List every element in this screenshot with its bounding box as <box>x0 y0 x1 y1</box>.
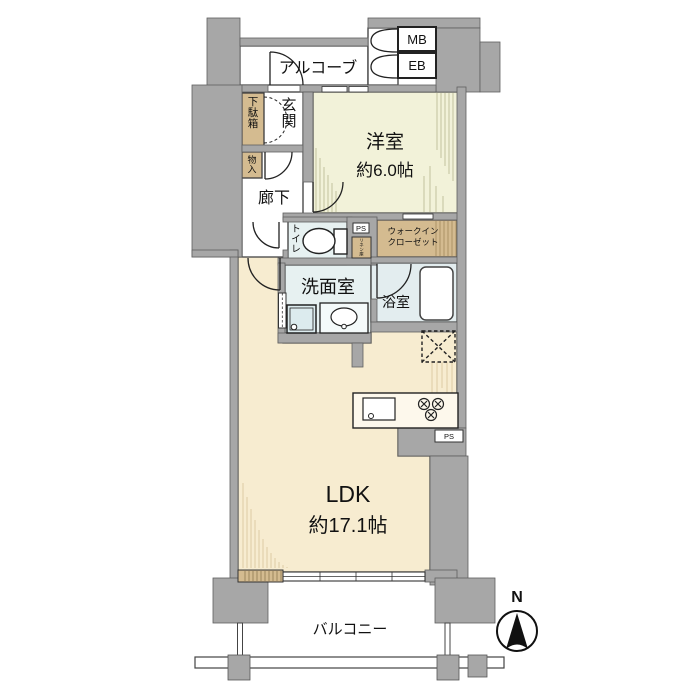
bathroom-label: 浴室 <box>382 294 410 310</box>
wic-label-line2: クローゼット <box>387 237 438 247</box>
ldk-size-label: 約17.1帖 <box>309 514 388 537</box>
washroom-label: 洗面室 <box>301 277 355 297</box>
wic-label-line1: ウォークイン <box>387 226 438 236</box>
bathtub <box>420 267 453 320</box>
balcony-label: バルコニー <box>313 621 388 638</box>
storage-label: 物入 <box>247 154 256 174</box>
entrance-label: 玄関 <box>281 97 296 130</box>
hallway-label: 廊下 <box>258 189 290 207</box>
western-room-door-pocket <box>305 182 313 213</box>
vanity-sink <box>320 303 368 333</box>
mb-label: MB <box>407 32 427 47</box>
alcove-label: アルコーブ <box>279 58 358 77</box>
compass-north-label: N <box>511 589 523 606</box>
western-room-window-1 <box>322 87 347 93</box>
eb-label: EB <box>408 58 425 73</box>
kitchen-sink <box>363 398 395 420</box>
floor-plan-page: N アルコーブ MB EB 下駄箱 玄関 物入 廊下 洋室 約6.0帖 トイレ … <box>0 0 700 700</box>
balcony-divider-left <box>238 623 243 657</box>
kitchen-counter <box>353 393 458 428</box>
toilet-label: トイレ <box>291 224 301 255</box>
floor-plan: N アルコーブ MB EB 下駄箱 玄関 物入 廊下 洋室 約6.0帖 トイレ … <box>0 0 700 700</box>
western-room-label: 洋室 <box>366 131 404 153</box>
washroom-folding-door <box>279 293 287 328</box>
compass: N <box>497 589 537 651</box>
ldk-label: LDK <box>326 481 371 507</box>
pipe-space-top-label: PS <box>356 224 366 233</box>
washing-machine-pan <box>287 305 316 333</box>
linen-label: リネン庫 <box>359 238 364 258</box>
western-room-size: 約6.0帖 <box>356 161 414 180</box>
shoe-cabinet-label: 下駄箱 <box>248 96 259 130</box>
wic-window <box>403 214 433 219</box>
pipe-space-kitchen-label: PS <box>444 432 454 441</box>
balcony-divider-right <box>445 623 450 657</box>
toilet-fixture <box>303 229 347 255</box>
western-room-window-2 <box>349 87 368 93</box>
